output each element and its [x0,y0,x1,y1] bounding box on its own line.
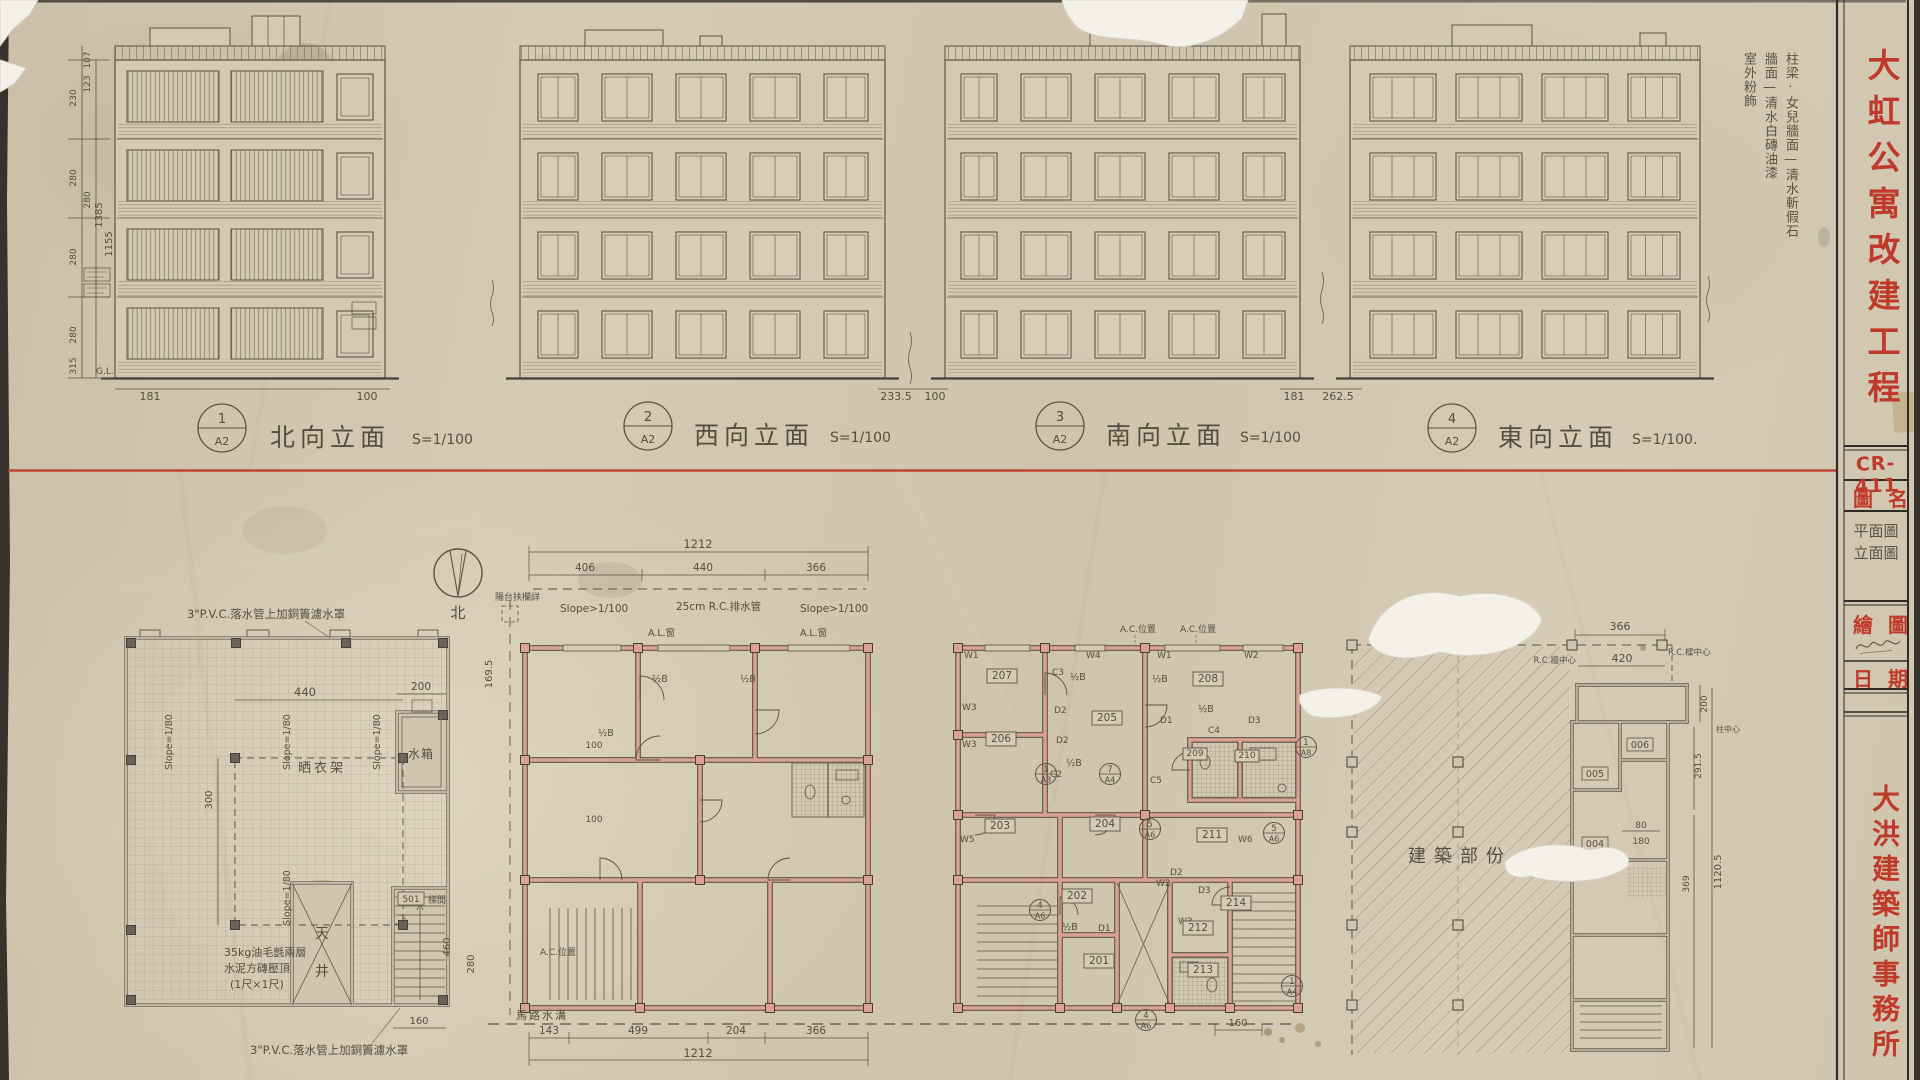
room-number: 212 [1188,922,1208,934]
elevation-label-3: 3 A2 南向立面 S=1/100 [1036,402,1301,450]
elevation-scale: S=1/100. [1632,432,1697,448]
dim-label: 366 [806,1025,826,1037]
dim-label: 200 [411,681,431,693]
ref-num: 1 [1043,765,1048,775]
ac-location-label: A.C.位置 [1120,623,1156,635]
elevation-ref-num: 3 [1056,410,1064,425]
slope-label: Slope=1/80 [282,714,293,770]
office-name: 大洪建築師事務所 [1850,784,1904,1064]
date-label: 日期 [1845,663,1907,692]
dim-label: 80 [1635,821,1647,831]
door-mark: D1 [1160,716,1173,726]
dim-label: 499 [628,1025,648,1037]
dim-label: 204 [726,1025,746,1037]
room-number-tags: 2012022032042052062072082092102112122132… [985,669,1259,977]
room-number: 207 [992,670,1012,682]
roof-plan: 440 200 300 460 160 Slope=1/80 Slope=1/8… [126,607,453,1057]
column-mark: C5 [1150,776,1162,786]
door-mark: D3 [1198,886,1211,896]
rc-wall-note: R.C.牆中心 [1534,655,1577,666]
dim-label: 369 [1682,875,1692,892]
coping-note: 水泥方磚壓頂 [224,961,290,975]
down-label: 下 [398,915,407,925]
dim-label: 107 [83,51,93,68]
ref-num: 4 [1143,1011,1148,1021]
window-mark: W5 [960,835,975,845]
elevation-east [1336,25,1714,379]
ref-sheet: A6 [1141,1022,1152,1031]
dim-label: 440 [693,562,713,574]
dim-label: 1155 [104,231,115,256]
project-title: 大虹公寓改建工程 [1849,22,1905,442]
dim-label: 233.5 [880,390,912,403]
exterior-finish-notes: 柱梁·女兒牆面—清水斬假石 牆面—清水白磚油漆 室外粉飾 [1742,52,1797,312]
aluminum-window-label: A.L.窗 [800,627,827,639]
stair-room-number: 501 [402,895,419,905]
dim-label: 100 [357,390,378,403]
dim-label: 280 [69,248,79,265]
ref-sheet: A6 [1035,912,1046,921]
ref-num: 4 [1037,901,1042,911]
pvc-note-top: 3"P.V.C.落水管上加銅簀濾水罩 [187,607,345,621]
ref-num: 7 [1107,765,1112,775]
dim-label: 440 [294,685,316,699]
column-mark: C3 [1052,668,1064,678]
window-mark: W3 [962,703,977,713]
elevation-ref-sheet: A2 [1445,435,1460,448]
north-arrow: 北 [434,549,482,622]
light-well-label: 天 [315,926,329,942]
room-number: 005 [1586,769,1604,780]
ref-sheet: A4 [1287,988,1298,997]
room-number: 213 [1193,964,1213,976]
elevation-west [506,30,899,379]
drawing-name-label: 圖名 [1845,483,1907,512]
window-mark: W6 [1238,835,1253,845]
rc-beam-note: R.C.樑中心 [1668,647,1711,658]
elevation-scale: S=1/100 [1240,430,1301,446]
dim-label: 1120.5 [1713,855,1724,890]
coping-note: (1尺×1尺) [230,978,284,991]
room-number: 211 [1202,829,1222,841]
wall-thickness-label: ½B [1062,922,1078,933]
room-number: 203 [990,820,1010,832]
light-well-label: 井 [315,964,329,980]
coping-note: 35kg油毛氈兩層 [224,945,306,959]
building-portion-label: 建築部份 [1408,846,1512,867]
ref-num: 1 [1303,738,1308,748]
ref-num: 1 [1289,977,1294,987]
dim-label: 262.5 [1322,390,1354,403]
door-mark: D2 [1054,706,1067,716]
room-number: 214 [1226,897,1246,909]
dim-label: 280 [466,954,477,973]
dim-label: 100 [585,741,602,751]
dim-label: 280 [69,169,79,186]
wall-thickness-label: ½B [1070,672,1086,683]
ground-level-label: G.L. [96,367,114,377]
door-mark: D2 [1170,868,1183,878]
stair-label: 梯間 [428,894,446,906]
door-mark: D2 [1056,736,1069,746]
room-number: 204 [1095,818,1115,830]
dim-label: 143 [539,1025,559,1037]
pvc-note-bottom: 3"P.V.C.落水管上加銅簀濾水罩 [250,1043,408,1057]
elevation-title: 西向立面 [694,421,814,450]
ref-sheet: A6 [1145,831,1156,840]
window-mark: W2 [1156,879,1171,889]
room-number: 201 [1089,955,1109,967]
dim-label: 160 [409,1016,428,1027]
window-mark: W1 [964,651,979,661]
dim-label: 366 [806,562,826,574]
column-mark: C4 [1208,726,1220,736]
ref-sheet: A4 [1105,776,1116,785]
elevation-ref-num: 2 [644,410,652,425]
elevation-ref-num: 4 [1448,412,1456,427]
ac-location-label: A.C.位置 [1180,623,1216,635]
dim-label: 180 [1632,837,1649,847]
dim-label: 366 [1610,620,1631,633]
room-number: 202 [1067,890,1087,902]
elevation-title: 南向立面 [1106,421,1226,450]
dim-label: 1212 [683,1046,712,1060]
dim-label: 181 [1284,390,1305,403]
elevation-label-2: 2 A2 西向立面 S=1/100 [624,402,891,450]
elevation-ref-num: 1 [218,412,226,427]
window-mark: W4 [1086,651,1101,661]
room-number: 006 [1631,740,1649,751]
drawing-name-line: 立面圖 [1845,542,1907,564]
wall-thickness-label: ½B [1198,704,1214,715]
room-number: 210 [1238,751,1255,761]
window-mark: W1 [1157,651,1172,661]
wall-thickness-label: ½B [598,728,614,739]
drawing-name-line: 平面圖 [1845,520,1907,542]
dim-label: 460 [442,937,453,956]
ground-floor-plan: A.C.位置 A.C.位置 160 ½B ½B ½B ½B ½B W1 W4 W… [954,623,1317,1036]
elevation-title: 北向立面 [270,423,390,452]
dim-label: 406 [575,562,595,574]
wall-thickness-label: ½B [652,674,668,685]
aluminum-window-label: A.L.窗 [648,627,675,639]
water-tank-label: 水箱 [408,746,434,761]
dim-label: 123 [83,75,93,92]
elevation-north [101,16,399,379]
wall-thickness-label: ½B [1152,674,1168,685]
window-mark: W3 [962,740,977,750]
finish-note-wall: 牆面—清水白磚油漆 [1763,52,1776,312]
elevation-scale: S=1/100 [412,432,473,448]
drawing-canvas: 107 123 230 280 280 280 280 1385 1155 31… [0,0,1920,1080]
ref-num: 5 [1147,820,1152,830]
dim-label: 291.5 [1694,753,1704,779]
dim-label: 100 [925,390,946,403]
dim-label: 1212 [683,537,712,551]
dim-label: 1385 [94,202,105,227]
dim-label: 160 [1228,1018,1247,1029]
elevation-ref-sheet: A2 [641,433,656,446]
dim-label: 280 [83,191,93,208]
balcony-note: 陽台扶欄詳 [495,591,540,603]
dim-label: 169.5 [484,660,495,689]
slope-label: Slope=1/80 [282,870,293,926]
ref-sheet: A6 [1269,835,1280,844]
finish-note-exterior: 室外粉飾 [1742,52,1755,312]
wall-thickness-label: ½B [740,674,756,685]
finish-note-structure: 柱梁·女兒牆面—清水斬假石 [1784,52,1797,312]
drawn-by-signature [1850,634,1904,658]
elevation-label-4: 4 A2 東向立面 S=1/100. [1428,404,1697,452]
ref-sheet: A8 [1301,749,1312,758]
site-plan: 建築部份 006 005 004 366 420 R.C.牆中心 R.C.樑中心… [1347,620,1740,1055]
dim-label: 300 [204,790,215,809]
ref-num: 5 [1271,824,1276,834]
elevation-ref-sheet: A2 [215,435,230,448]
dim-label: 420 [1612,652,1633,665]
room-number: 205 [1097,712,1117,724]
north-label: 北 [450,604,465,622]
slope-label: Slope=1/80 [164,714,175,770]
elevation-label-1: 1 A2 北向立面 S=1/100 [198,404,473,452]
dim-label: 280 [69,326,79,343]
elevation-title: 東向立面 [1498,423,1618,452]
slope-label: Slope>1/100 [560,603,628,615]
dim-label: 181 [140,390,161,403]
room-number: 209 [1186,749,1203,759]
dim-label: 315 [69,357,79,374]
door-mark: D3 [1248,716,1261,726]
wall-thickness-label: ½B [1066,758,1082,769]
road-gutter-label: 馬路水溝 [516,1009,568,1022]
drying-rack-label: 晒衣架 [298,760,346,776]
column-center-note: 柱中心 [1716,724,1740,734]
elevation-ref-sheet: A2 [1053,433,1068,446]
slope-label: Slope>1/100 [800,603,868,615]
elevation-south [931,14,1314,379]
room-number: 208 [1198,673,1218,685]
blueprint-sheet: 107 123 230 280 280 280 280 1385 1155 31… [0,0,1920,1080]
slope-label: Slope=1/80 [372,714,383,770]
room-number: 206 [991,733,1011,745]
drawing-name-value: 平面圖 立面圖 [1845,520,1907,564]
elevation-scale: S=1/100 [830,430,891,446]
left-dimension-strip: 107 123 230 280 280 280 280 1385 1155 31… [68,46,115,378]
dim-label: 100 [585,815,602,825]
door-mark: D1 [1098,924,1111,934]
window-mark: W2 [1244,651,1259,661]
pipe-note: 25cm R.C.排水管 [676,600,761,613]
dim-label: 200 [1700,695,1710,712]
ref-sheet: A3 [1041,776,1052,785]
ac-location-label: A.C.位置 [540,946,576,958]
dim-label: 230 [69,89,79,106]
